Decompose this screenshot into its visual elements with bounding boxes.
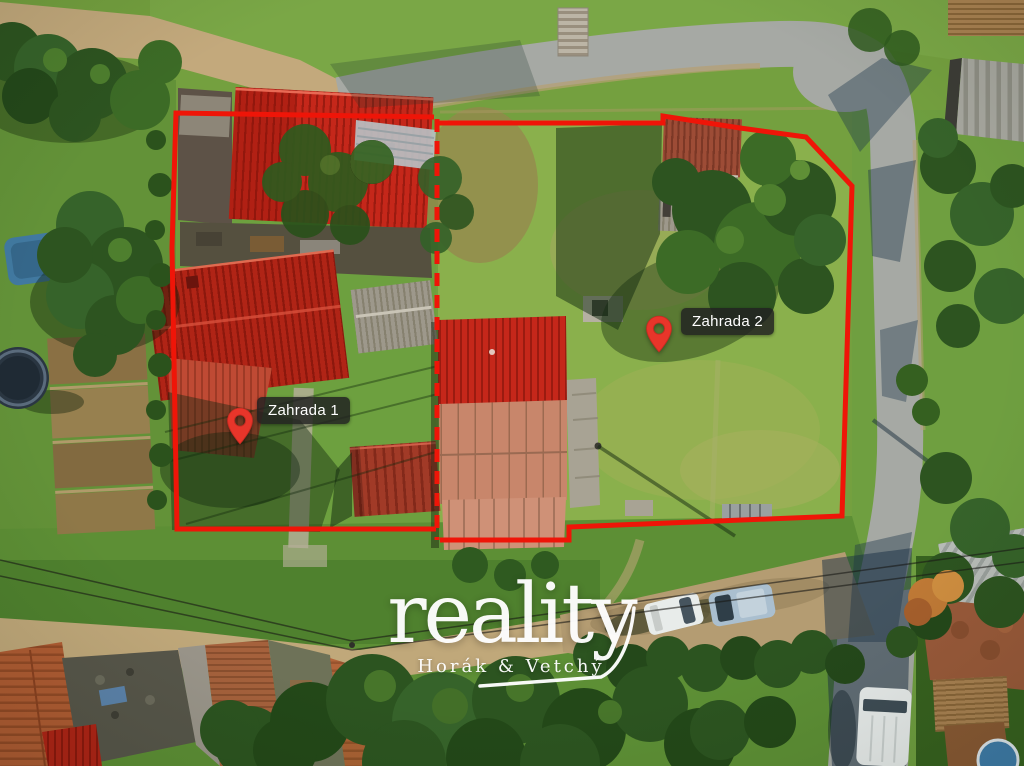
aerial-scene (0, 0, 1024, 766)
aerial-photo-stage: Zahrada 1 Zahrada 2 reality Horák & Vetc… (0, 0, 1024, 766)
vignette (0, 0, 1024, 766)
